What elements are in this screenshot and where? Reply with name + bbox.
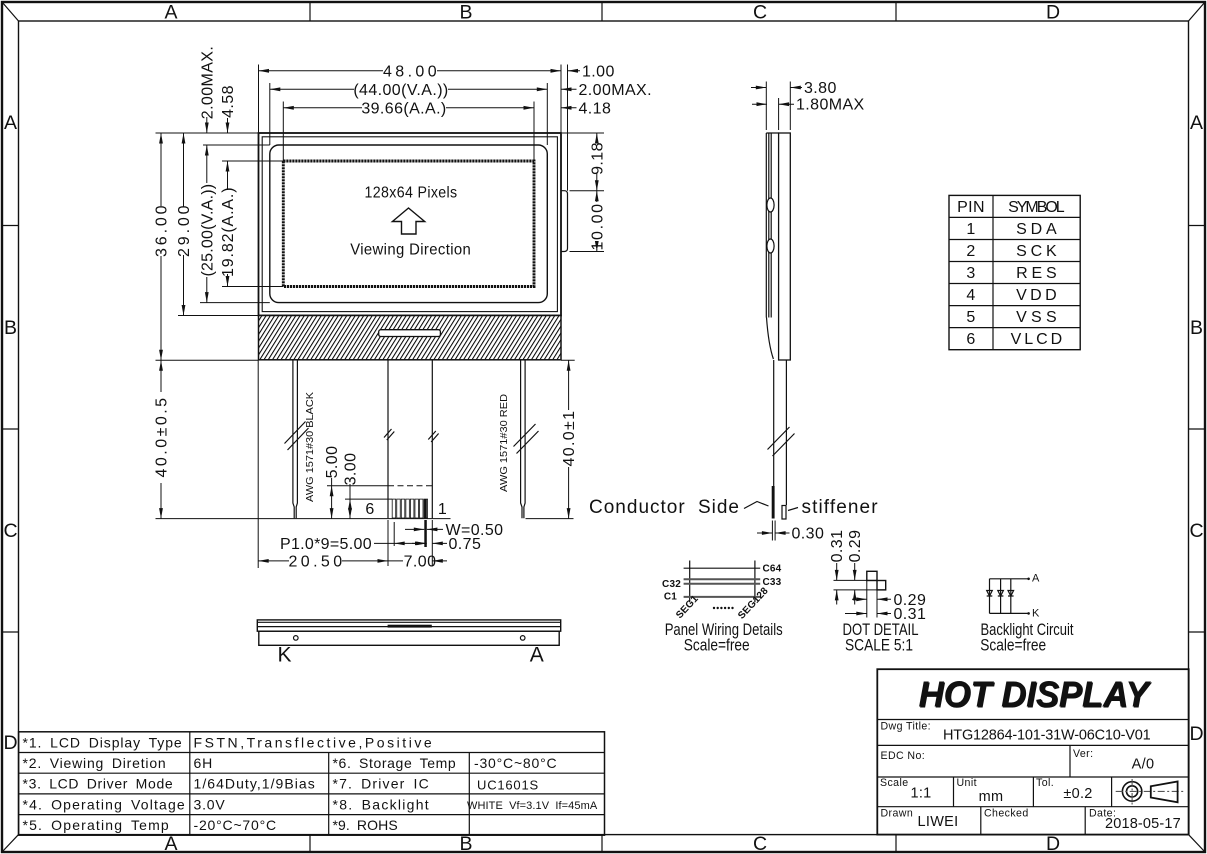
svg-text:1: 1 [966, 221, 975, 238]
svg-text:7.00: 7.00 [404, 553, 437, 570]
svg-text:A: A [1032, 573, 1040, 585]
svg-text:0.29: 0.29 [847, 530, 864, 563]
svg-text:mm: mm [979, 789, 1004, 805]
svg-text:128x64 Pixels: 128x64 Pixels [365, 185, 458, 202]
svg-text:FSTN,Transflective,Positive: FSTN,Transflective,Positive [194, 734, 433, 750]
svg-text:Scale=free: Scale=free [684, 636, 750, 655]
svg-text:0.30: 0.30 [792, 526, 825, 543]
svg-text:AWG 1571#30 RED: AWG 1571#30 RED [498, 394, 510, 492]
svg-text:K: K [1032, 608, 1040, 620]
svg-text:P1.0*9=5.00: P1.0*9=5.00 [280, 536, 372, 553]
svg-text:stiffener: stiffener [802, 497, 879, 518]
svg-text:19.82(A.A.): 19.82(A.A.) [220, 187, 237, 277]
svg-text:VSS: VSS [1016, 309, 1057, 326]
svg-text:40.0±1: 40.0±1 [561, 411, 578, 467]
svg-text:3.00: 3.00 [343, 453, 360, 486]
svg-text:Scale=free: Scale=free [980, 636, 1046, 655]
svg-text:A: A [4, 112, 17, 134]
svg-text:SCK: SCK [1016, 243, 1057, 260]
svg-text:3.80: 3.80 [804, 80, 837, 97]
svg-text:4.18: 4.18 [579, 100, 612, 117]
svg-text:6: 6 [365, 501, 374, 518]
svg-text:RES: RES [1016, 265, 1057, 282]
svg-text:Drawn: Drawn [881, 808, 914, 820]
svg-text:Conductor Side: Conductor Side [589, 497, 740, 518]
svg-text:B: B [1190, 317, 1203, 339]
svg-text:Tol.: Tol. [1036, 777, 1054, 789]
svg-text:LIWEI: LIWEI [918, 814, 959, 830]
svg-text:C: C [753, 833, 767, 854]
svg-text:Viewing Direction: Viewing Direction [350, 242, 471, 259]
svg-text:3: 3 [966, 265, 975, 282]
svg-text:10.00: 10.00 [589, 204, 606, 251]
svg-text:*3. LCD Driver Mode: *3. LCD Driver Mode [23, 776, 174, 792]
svg-text:36.00: 36.00 [154, 205, 171, 257]
svg-text:2.00MAX.: 2.00MAX. [579, 82, 652, 99]
svg-text:Checked: Checked [984, 808, 1029, 820]
svg-text:1/64Duty,1/9Bias: 1/64Duty,1/9Bias [194, 776, 316, 792]
svg-text:Ver:: Ver: [1073, 748, 1093, 760]
svg-text:1.00: 1.00 [582, 63, 615, 80]
svg-text:D: D [1189, 723, 1203, 745]
svg-text:5.00: 5.00 [324, 446, 341, 479]
svg-text:Dwg Title:: Dwg Title: [881, 721, 932, 733]
svg-text:-30°C~80°C: -30°C~80°C [474, 755, 557, 771]
svg-text:*1. LCD Display Type: *1. LCD Display Type [23, 734, 183, 750]
svg-text:*8. Backlight: *8. Backlight [333, 796, 430, 812]
svg-text:±0.2: ±0.2 [1063, 786, 1092, 802]
svg-text:HOT DISPLAY: HOT DISPLAY [920, 675, 1153, 716]
svg-text:C: C [1189, 520, 1203, 542]
svg-text:2.00MAX.: 2.00MAX. [199, 46, 216, 119]
svg-text:*2. Viewing Diretion: *2. Viewing Diretion [23, 755, 167, 771]
svg-text:A/0: A/0 [1132, 757, 1155, 773]
svg-text:B: B [459, 833, 472, 854]
svg-text:3.0V: 3.0V [194, 796, 226, 812]
svg-text:*4. Operating Voltage: *4. Operating Voltage [23, 796, 186, 812]
svg-text:20.50: 20.50 [289, 553, 343, 570]
svg-text:C33: C33 [763, 577, 782, 588]
svg-text:2: 2 [966, 243, 975, 260]
svg-text:PIN: PIN [957, 199, 985, 216]
svg-text:0.31: 0.31 [829, 530, 846, 563]
svg-text:K: K [277, 644, 291, 667]
svg-text:*7. Driver IC: *7. Driver IC [333, 776, 430, 792]
svg-text:6: 6 [966, 331, 975, 348]
svg-text:B: B [4, 317, 17, 339]
svg-text:C32: C32 [662, 579, 681, 590]
svg-text:1:1: 1:1 [910, 786, 931, 802]
svg-text:C1: C1 [664, 592, 677, 603]
svg-text:4.58: 4.58 [220, 85, 237, 118]
svg-text:W=0.50: W=0.50 [446, 522, 504, 539]
svg-text:UC1601S: UC1601S [477, 778, 539, 793]
svg-text:4: 4 [966, 287, 975, 304]
svg-text:9.18: 9.18 [589, 142, 606, 175]
svg-text:39.66(A.A.): 39.66(A.A.) [361, 100, 446, 117]
svg-text:A: A [164, 2, 177, 24]
svg-text:SYMBOL: SYMBOL [1008, 199, 1065, 216]
svg-text:(44.00(V.A.)): (44.00(V.A.)) [353, 82, 448, 99]
svg-text:WHITE Vf=3.1V If=45mA: WHITE Vf=3.1V If=45mA [467, 800, 598, 812]
svg-text:A: A [530, 644, 544, 667]
svg-text:SDA: SDA [1016, 221, 1057, 238]
svg-text:5: 5 [966, 309, 975, 326]
svg-text:C64: C64 [763, 564, 782, 575]
svg-text:D: D [1046, 833, 1060, 854]
svg-text:A: A [164, 833, 177, 854]
svg-text:29.00: 29.00 [176, 205, 193, 257]
svg-text:1.80MAX: 1.80MAX [796, 97, 865, 114]
svg-text:1: 1 [438, 501, 447, 518]
svg-text:EDC No:: EDC No: [881, 750, 926, 762]
svg-text:VLCD: VLCD [1011, 331, 1063, 348]
svg-text:B: B [459, 2, 472, 24]
svg-text:D: D [1046, 2, 1060, 24]
svg-text:C: C [3, 520, 17, 542]
svg-text:*9. ROHS: *9. ROHS [333, 817, 399, 833]
svg-text:A: A [1190, 112, 1203, 134]
svg-text:-20°C~70°C: -20°C~70°C [194, 817, 277, 833]
svg-text:6H: 6H [194, 755, 214, 771]
svg-text:Scale: Scale [880, 777, 909, 789]
svg-text:D: D [3, 732, 17, 754]
svg-text:*6. Storage Temp: *6. Storage Temp [333, 755, 457, 771]
svg-text:Unit: Unit [957, 777, 977, 789]
svg-text:HTG12864-101-31W-06C10-V01: HTG12864-101-31W-06C10-V01 [943, 728, 1151, 744]
svg-text:VDD: VDD [1016, 287, 1057, 304]
svg-text:(25.00(V.A.)): (25.00(V.A.)) [199, 184, 216, 277]
svg-text:SCALE 5:1: SCALE 5:1 [845, 636, 913, 655]
svg-text:2018-05-17: 2018-05-17 [1105, 816, 1181, 832]
svg-text:C: C [753, 2, 767, 24]
svg-text:AWG 1571#30 BLACK: AWG 1571#30 BLACK [304, 392, 316, 502]
svg-text:48.00: 48.00 [383, 63, 437, 80]
svg-text:*5. Operating Temp: *5. Operating Temp [23, 817, 170, 833]
